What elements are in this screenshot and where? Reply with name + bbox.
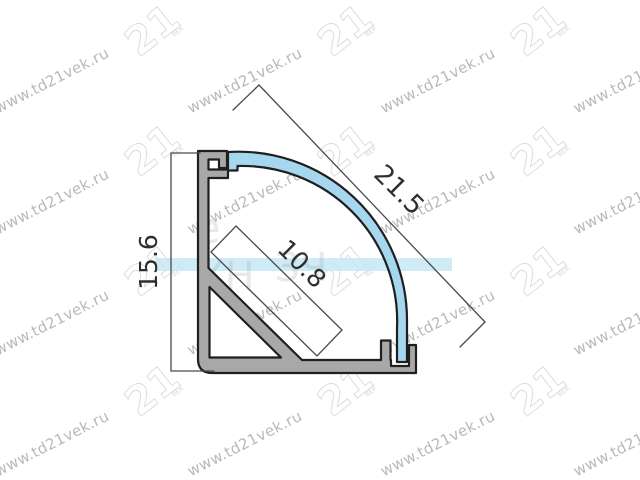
watermark-url-text: www.td21vek.ru [0, 407, 112, 480]
watermark-url-text: www.td21vek.ru [377, 407, 498, 480]
dimension-height-label: 15.6 [134, 234, 163, 290]
watermark-url-text: www.td21vek.ru [570, 165, 640, 238]
technical-drawing-canvas: www.td21vek.ruwww.td21vek.ruwww.td21vek.… [0, 0, 640, 480]
watermark-logo-21vek: 21ВЕК [503, 0, 575, 66]
watermark-logo-21vek: 21ВЕК [117, 356, 189, 427]
watermark-url-text: www.td21vek.ru [570, 407, 640, 480]
watermark-url-text: www.td21vek.ru [570, 286, 640, 359]
watermark-url-text: www.td21vek.ru [0, 165, 112, 238]
watermark-url-text: www.td21vek.ru [377, 44, 498, 117]
watermark-url-text: www.td21vek.ru [570, 44, 640, 117]
watermark-url-text: www.td21vek.ru [0, 286, 112, 359]
watermark-url-text: www.td21vek.ru [184, 44, 305, 117]
watermark-logo-21vek: 21ВЕК [503, 356, 575, 427]
product-drawing-image: www.td21vek.ruwww.td21vek.ruwww.td21vek.… [0, 0, 640, 480]
watermark-logo-21vek: 21ВЕК [503, 116, 575, 187]
watermark-url-text: www.td21vek.ru [184, 407, 305, 480]
watermark-logo-21vek: 21ВЕК [117, 116, 189, 187]
watermark-logo-21vek: 21ВЕК [117, 0, 189, 66]
dimension-diagonal-tick-bottom [460, 322, 485, 347]
watermark-layer: www.td21vek.ruwww.td21vek.ruwww.td21vek.… [0, 0, 640, 480]
watermark-logo-21vek: 21ВЕК [310, 0, 382, 66]
watermark-url-text: www.td21vek.ru [0, 44, 112, 117]
watermark-logo-21vek: 21ВЕК [503, 236, 575, 307]
